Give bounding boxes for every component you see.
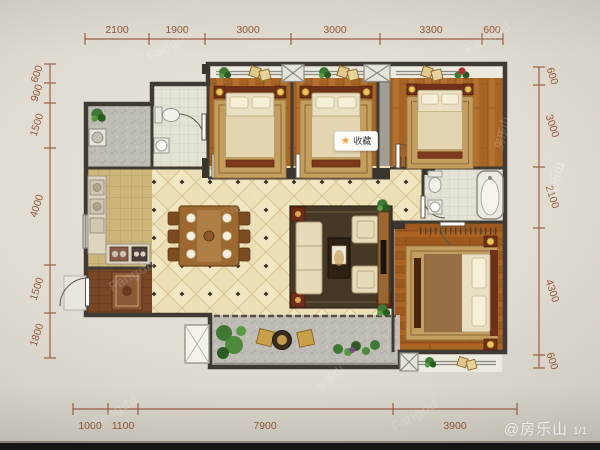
floorplan-drawing: 2100 1900 3000 3000 3300 600 1000 1100 7… — [0, 0, 600, 450]
brand-watermark: Fangdd — [389, 395, 441, 434]
credit-text: @房乐山 — [504, 418, 568, 439]
dim-label: 3000 — [323, 24, 347, 36]
shaft-window-icon — [185, 325, 209, 363]
dim-label: 600 — [29, 64, 46, 85]
bay-window-icon — [364, 65, 390, 82]
hallway-floor — [390, 168, 423, 222]
dim-label: 4000 — [28, 193, 47, 219]
sink-icon — [156, 140, 167, 151]
site-watermark: 房乐山 — [543, 160, 567, 199]
dim-label: 600 — [544, 351, 561, 372]
photo-bottom-edge — [0, 443, 600, 450]
balcony-chair — [256, 329, 274, 347]
dim-label: 1500 — [28, 112, 47, 138]
page-indicator: 1/1 — [573, 426, 587, 437]
dim-label: 600 — [544, 66, 561, 87]
bathtub-icon — [477, 171, 503, 219]
floorplan-photo: 2100 1900 3000 3000 3300 600 1000 1100 7… — [0, 0, 600, 450]
bay-window-icon — [400, 353, 418, 371]
bay-window-icon — [282, 65, 304, 82]
balcony-chair — [297, 329, 315, 347]
tv-cabinet — [378, 212, 389, 304]
dim-label: 3000 — [543, 113, 562, 139]
dim-label: 4300 — [543, 278, 562, 304]
bed-master — [406, 236, 498, 350]
sofa-set — [290, 206, 392, 308]
dining-set — [168, 206, 250, 266]
dim-label: 1800 — [28, 322, 47, 348]
toilet-icon — [429, 178, 441, 193]
dim-label: 3300 — [419, 24, 443, 36]
dim-label: 7900 — [253, 420, 277, 432]
dim-label: 1100 — [112, 420, 135, 432]
dim-label: 3900 — [443, 420, 467, 432]
favorite-badge[interactable]: ★ 收藏 — [334, 131, 378, 151]
dim-label: 900 — [29, 83, 46, 104]
closet-strip — [378, 82, 390, 178]
toilet-icon — [163, 109, 180, 122]
bed-bedroom2 — [214, 86, 286, 178]
dim-label: 3000 — [236, 24, 260, 36]
sink-icon — [430, 202, 440, 212]
dim-label: 1500 — [28, 276, 47, 302]
bed-bedroom1 — [407, 84, 473, 169]
credit-watermark: @房乐山 1/1 — [504, 418, 587, 439]
star-icon: ★ — [341, 136, 351, 147]
favorite-badge-label: 收藏 — [353, 137, 371, 146]
dim-label: 2100 — [105, 24, 129, 36]
